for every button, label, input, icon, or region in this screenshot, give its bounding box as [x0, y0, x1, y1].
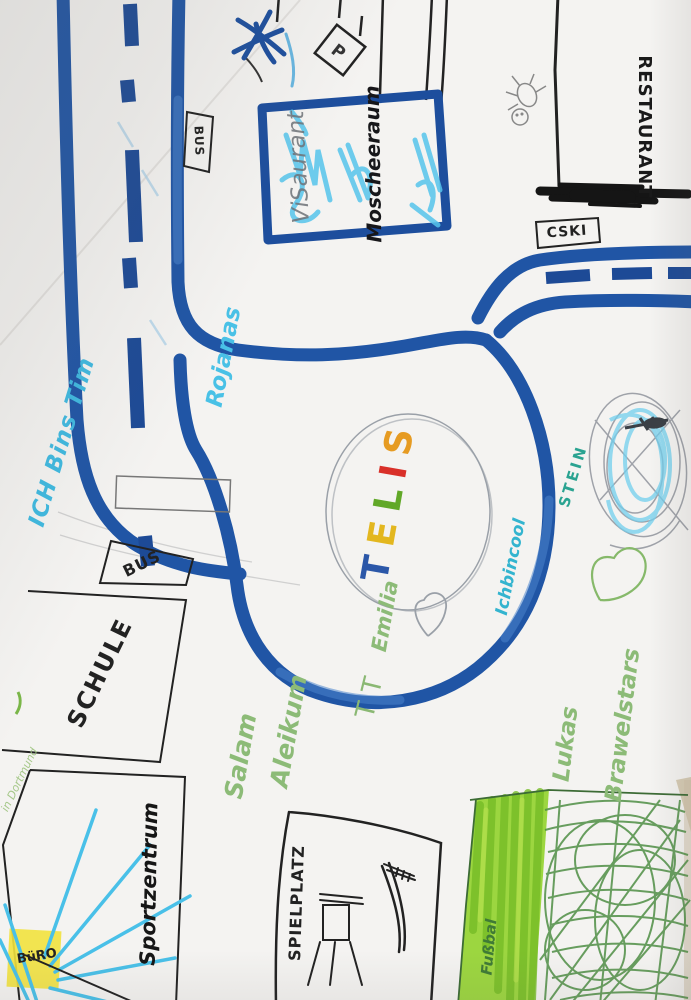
- restaurant-scribble-band: [540, 185, 688, 206]
- drawing-layer: [0, 0, 691, 1000]
- road-topright-lower-edge: [500, 301, 691, 333]
- green-heart-doodle: [592, 548, 646, 600]
- telis-letter-s: S: [375, 415, 424, 459]
- road-topright-center-dashes: [546, 273, 691, 278]
- bus-sign-label: BUS: [191, 111, 207, 171]
- restaurant-building: [540, 0, 688, 206]
- ant-doodle: [506, 74, 546, 125]
- road-left-center-dashes: [127, 4, 148, 566]
- stein-scribble: [580, 387, 691, 549]
- pencil-heart-doodle: [415, 593, 446, 636]
- sportzentrum-label: Sportzentrum: [134, 784, 163, 984]
- blue-building-marker-label: Moscheeraum: [360, 84, 387, 244]
- green-pencil-scribble: [540, 798, 690, 1000]
- plane-doodle: [234, 12, 294, 86]
- green-edge-mark: [16, 692, 20, 714]
- child-drawn-city-map: P BUS ViSaurant Moscheeraum RESTAURANT C…: [0, 0, 691, 1000]
- road-topright-upper-edge: [478, 252, 691, 318]
- slide-drawing: [308, 863, 415, 985]
- restaurant-label: RESTAURANT: [633, 52, 655, 202]
